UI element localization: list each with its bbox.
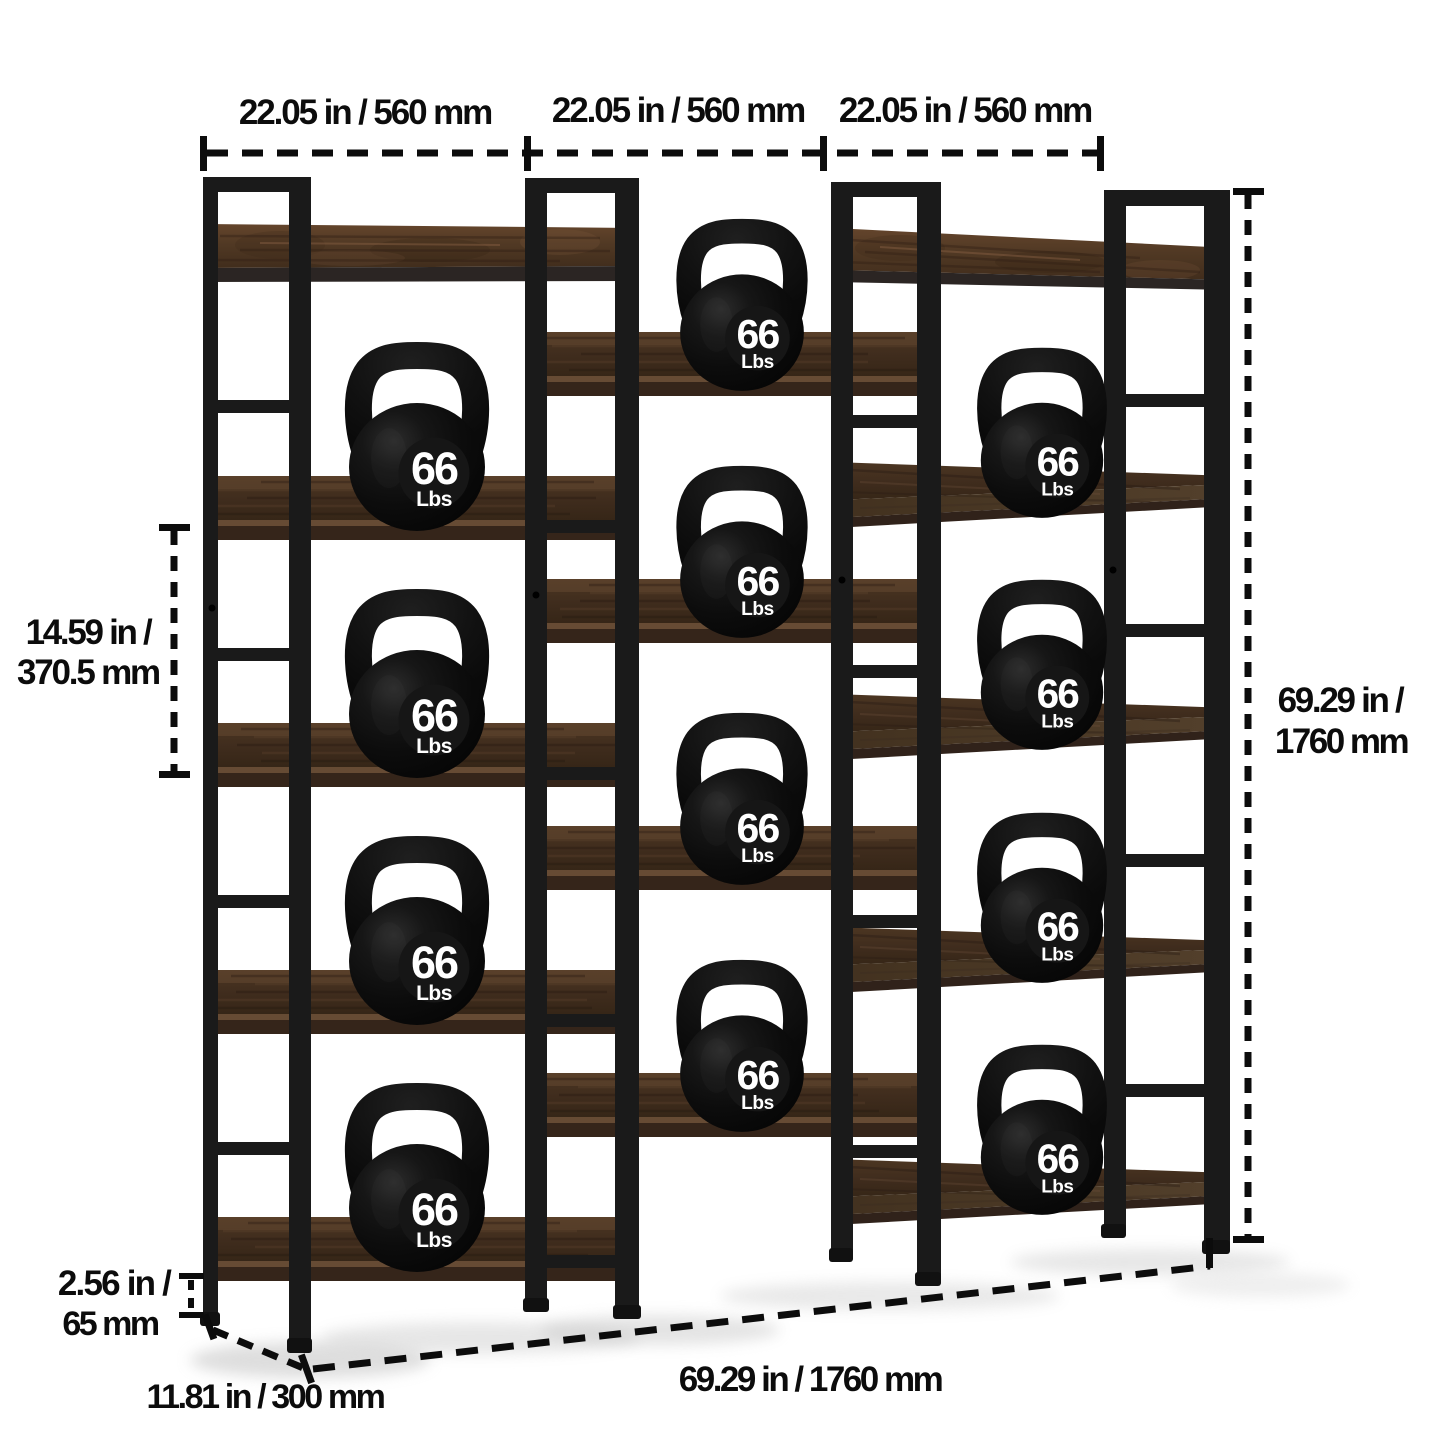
svg-text:22.05 in / 560 mm: 22.05 in / 560 mm bbox=[239, 93, 491, 132]
svg-text:69.29 in /: 69.29 in / bbox=[1278, 681, 1405, 720]
svg-text:69.29 in / 1760 mm: 69.29 in / 1760 mm bbox=[679, 1360, 942, 1399]
svg-text:1760 mm: 1760 mm bbox=[1275, 722, 1408, 761]
svg-text:370.5 mm: 370.5 mm bbox=[17, 653, 159, 692]
svg-text:11.81 in / 300 mm: 11.81 in / 300 mm bbox=[146, 1378, 384, 1416]
svg-text:2.56 in /: 2.56 in / bbox=[58, 1264, 172, 1303]
svg-text:22.05 in / 560 mm: 22.05 in / 560 mm bbox=[552, 91, 804, 130]
svg-text:14.59 in /: 14.59 in / bbox=[26, 613, 153, 652]
svg-text:22.05 in / 560 mm: 22.05 in / 560 mm bbox=[839, 91, 1091, 130]
svg-text:65 mm: 65 mm bbox=[62, 1305, 158, 1343]
